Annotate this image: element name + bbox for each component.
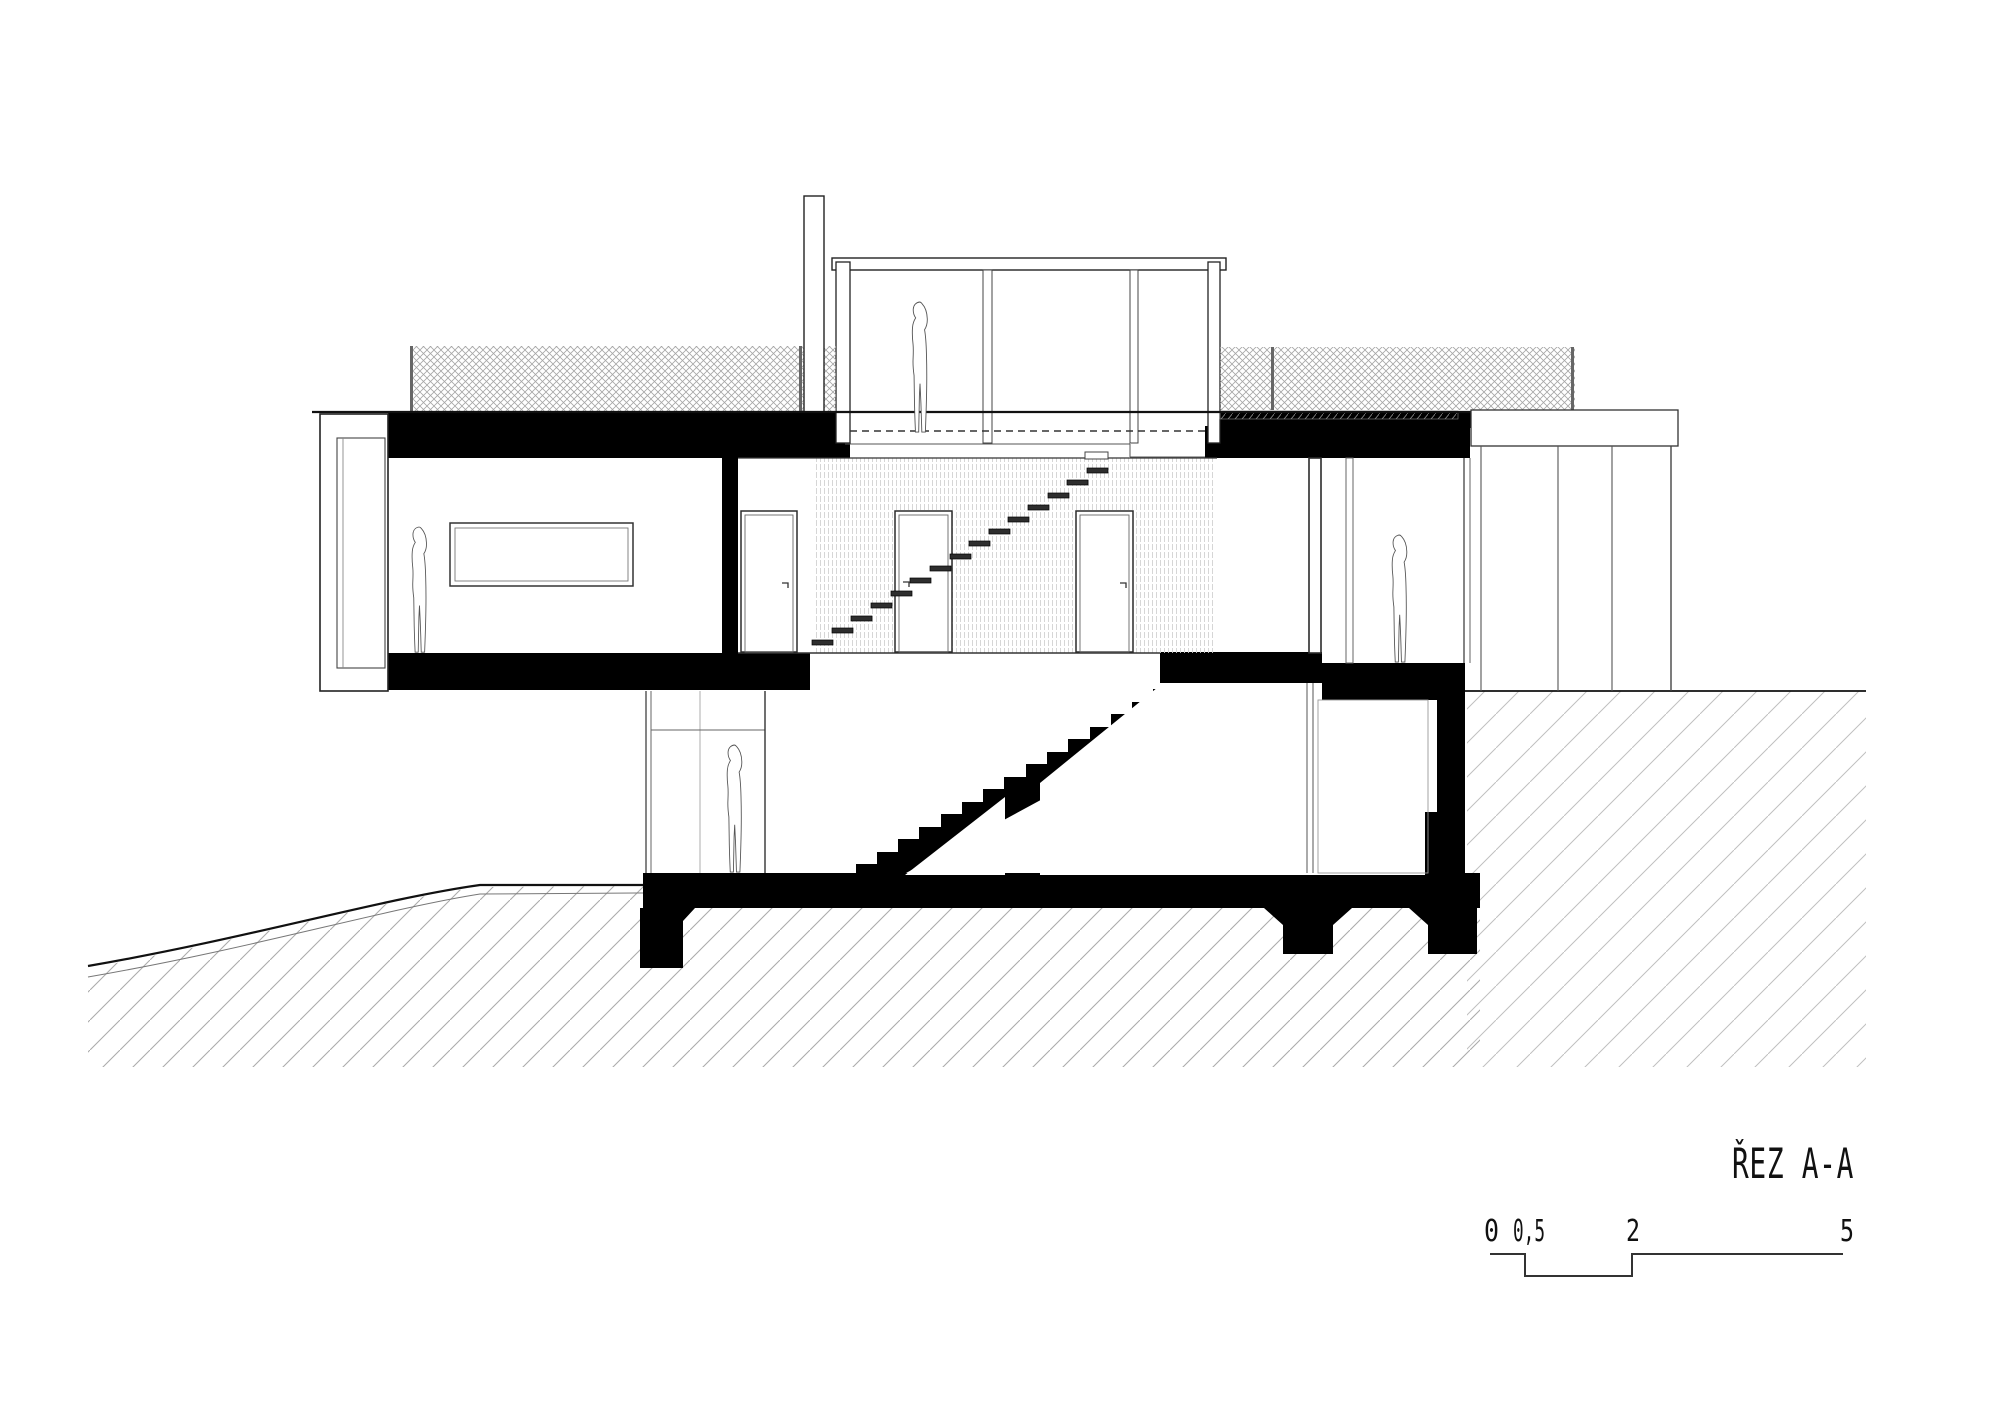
pavilion-roof-beam [832, 258, 1226, 270]
stair-tread [910, 578, 931, 583]
basement-wall-east-thickening [1425, 812, 1437, 875]
wall-corridor-west [722, 458, 738, 653]
stair-tread [1067, 480, 1088, 485]
person-left-room [412, 527, 426, 652]
scale-bar-line [1490, 1254, 1843, 1276]
railing-post [799, 346, 802, 411]
earth-hatch-under-building [645, 908, 1480, 1067]
pavilion-post-right [1208, 262, 1220, 443]
stair-tread [969, 541, 990, 546]
chimney [804, 196, 824, 412]
railing-post [1571, 347, 1574, 410]
drawing-sheet: ŘEZ A-A 0 0,5 2 5 [0, 0, 2000, 1414]
corridor-slat-wall [815, 458, 1215, 653]
scale-label-5: 5 [1840, 1214, 1854, 1249]
pavilion-mullion [1130, 270, 1138, 443]
hall-partition-wall [1309, 458, 1321, 653]
door-3 [1076, 511, 1133, 652]
annex-fascia [1471, 410, 1678, 446]
stair-tread [851, 616, 872, 621]
stair-tread [871, 603, 892, 608]
right-rooms [1309, 458, 1470, 663]
roof-slab-right-lower [1205, 426, 1470, 458]
basement-wall-east [1437, 682, 1465, 908]
pavilion-post-left [836, 262, 850, 443]
earth-hatch-right-bank [1467, 691, 1866, 1067]
railing-post [1271, 347, 1274, 410]
roof-slab-left [388, 413, 850, 458]
scale-label-2: 2 [1626, 1214, 1640, 1249]
roof-deck [312, 196, 1577, 419]
stair-tread [1048, 493, 1069, 498]
mesh-railing-left-stub [824, 346, 836, 411]
scale-label-0-5: 0,5 [1513, 1214, 1545, 1249]
scale-label-0: 0 [1484, 1214, 1499, 1249]
east-annex [1471, 410, 1678, 691]
stair-tread [832, 628, 853, 633]
basement-floor-slab [643, 873, 1480, 908]
mesh-railing-left [410, 346, 804, 411]
roof-pavilion [832, 258, 1226, 443]
stair-tread [1087, 468, 1108, 473]
stair-tread [930, 566, 951, 571]
stair-tread [812, 640, 833, 645]
corridor [738, 458, 1217, 653]
door-1 [741, 511, 797, 652]
stair-tread [891, 591, 912, 596]
floor-slab-left [388, 653, 810, 690]
section-drawing: ŘEZ A-A 0 0,5 2 5 [0, 0, 2000, 1414]
glass-partition [1346, 458, 1353, 663]
drawing-title: ŘEZ A-A [1732, 1138, 1854, 1188]
pavilion-mullion [983, 270, 992, 443]
west-glazing [337, 438, 385, 668]
stair-tread [1008, 517, 1029, 522]
stair-tread [950, 554, 971, 559]
stair-tread [1028, 505, 1049, 510]
railing-post [410, 346, 413, 411]
interior-window [450, 523, 633, 586]
earth-hatch-left-slope [88, 886, 645, 1067]
terrace-landing [845, 444, 1205, 459]
person-right-room [1392, 535, 1407, 662]
landing-step [1085, 452, 1108, 459]
stair-tread [989, 529, 1010, 534]
scale-bar: 0 0,5 2 5 [1484, 1214, 1854, 1276]
